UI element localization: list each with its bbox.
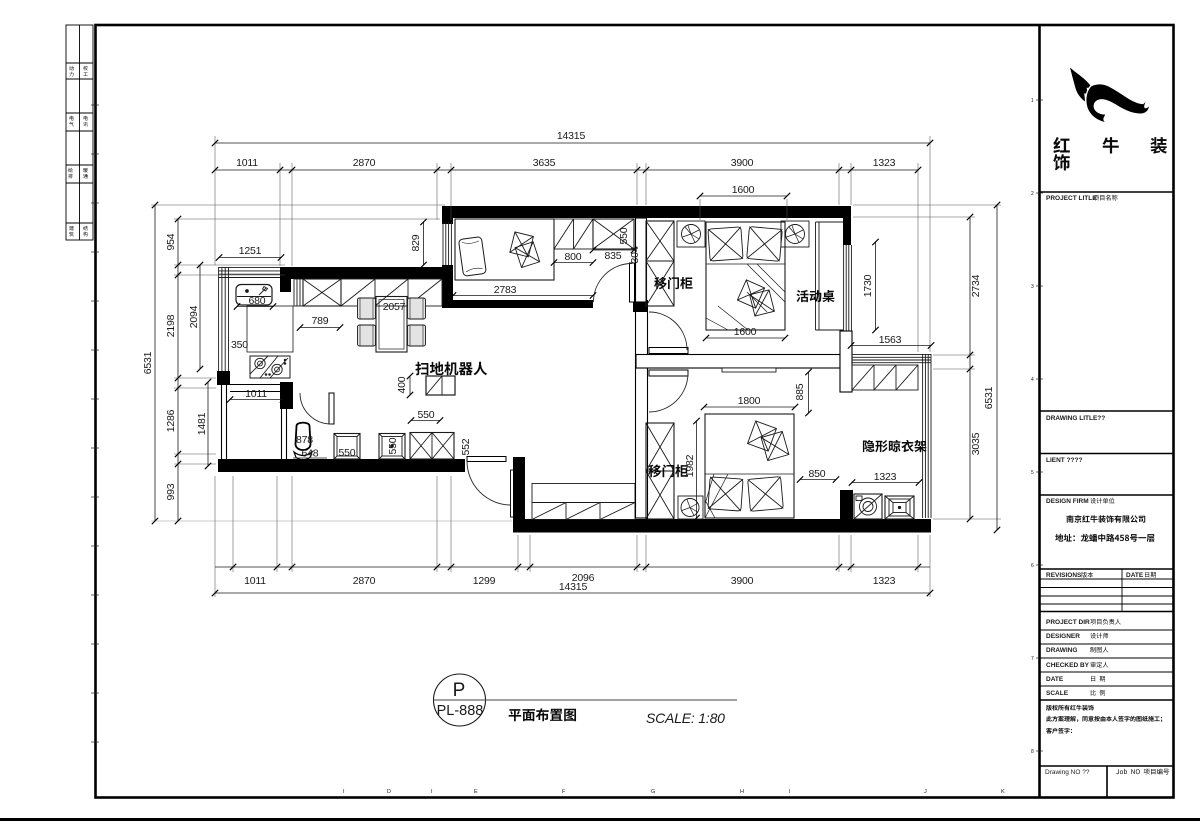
svg-text:1563: 1563 — [879, 334, 902, 346]
svg-text:3900: 3900 — [731, 575, 754, 587]
svg-text:E: E — [474, 789, 478, 795]
svg-text:6531: 6531 — [142, 351, 154, 374]
svg-text:8: 8 — [1031, 749, 1034, 755]
svg-text:835: 835 — [605, 250, 622, 262]
svg-text:1800: 1800 — [738, 395, 761, 407]
svg-text:D: D — [387, 789, 391, 795]
svg-text:14315: 14315 — [557, 130, 586, 142]
svg-text:1730: 1730 — [862, 274, 874, 297]
svg-text:550: 550 — [387, 437, 399, 454]
svg-text:H: H — [740, 789, 744, 795]
svg-text:6: 6 — [1031, 563, 1034, 569]
svg-text:SCALE: SCALE — [1046, 690, 1069, 697]
svg-text:885: 885 — [794, 383, 806, 400]
svg-text:550: 550 — [339, 447, 356, 459]
svg-text:2734: 2734 — [970, 274, 982, 297]
svg-text:PROJECT LITLE: PROJECT LITLE — [1046, 195, 1097, 202]
svg-text:304: 304 — [629, 246, 641, 263]
svg-text:2: 2 — [1031, 191, 1034, 197]
svg-text:PROJECT DIR: PROJECT DIR — [1046, 619, 1090, 626]
svg-text:SCALE: 1:80: SCALE: 1:80 — [646, 710, 725, 726]
svg-text:1: 1 — [1031, 98, 1034, 104]
svg-text:K: K — [1001, 789, 1005, 795]
svg-text:3: 3 — [1031, 284, 1034, 290]
svg-text:1011: 1011 — [236, 157, 258, 169]
svg-text:3900: 3900 — [731, 157, 754, 169]
svg-text:7: 7 — [1031, 656, 1034, 662]
svg-text:680: 680 — [249, 295, 266, 307]
svg-text:2198: 2198 — [165, 314, 177, 337]
svg-text:14315: 14315 — [559, 581, 588, 593]
svg-text:DESIGN FIRM: DESIGN FIRM — [1046, 498, 1089, 505]
svg-text:DRAWING: DRAWING — [1046, 647, 1077, 654]
svg-text:4: 4 — [1031, 377, 1034, 383]
svg-text:DATE: DATE — [1126, 572, 1144, 579]
svg-text:550: 550 — [418, 409, 435, 421]
svg-text:350: 350 — [231, 339, 248, 351]
svg-text:J: J — [924, 789, 927, 795]
svg-text:3035: 3035 — [970, 432, 982, 455]
svg-text:800: 800 — [565, 251, 582, 263]
svg-text:1323: 1323 — [874, 471, 897, 483]
svg-text:789: 789 — [312, 315, 329, 327]
svg-text:2094: 2094 — [188, 305, 200, 328]
svg-text:6531: 6531 — [983, 386, 995, 409]
svg-text:1011: 1011 — [245, 388, 267, 400]
svg-text:954: 954 — [165, 233, 177, 250]
svg-text:P: P — [453, 680, 466, 701]
svg-text:2783: 2783 — [494, 284, 517, 296]
svg-text:993: 993 — [165, 483, 177, 500]
svg-text:5: 5 — [1031, 470, 1034, 476]
svg-text:878: 878 — [296, 434, 313, 446]
svg-text:DATE: DATE — [1046, 676, 1064, 683]
svg-text:1286: 1286 — [165, 409, 177, 432]
svg-text:1600: 1600 — [732, 184, 755, 196]
svg-text:PL-888: PL-888 — [437, 703, 484, 719]
svg-text:Drawing NO ??: Drawing NO ?? — [1045, 769, 1090, 776]
svg-text:2870: 2870 — [353, 575, 376, 587]
svg-text:3635: 3635 — [533, 157, 556, 169]
svg-text:REVISIONS: REVISIONS — [1046, 572, 1082, 579]
svg-text:550: 550 — [618, 227, 630, 244]
svg-text:1299: 1299 — [473, 575, 496, 587]
svg-text:552: 552 — [460, 438, 472, 455]
svg-text:829: 829 — [410, 234, 422, 251]
svg-text:DESIGNER: DESIGNER — [1046, 633, 1080, 640]
svg-text:1323: 1323 — [873, 575, 896, 587]
svg-text:1323: 1323 — [873, 157, 896, 169]
svg-text:G: G — [651, 789, 655, 795]
svg-text:1251: 1251 — [239, 245, 262, 257]
svg-text:2057: 2057 — [383, 301, 406, 313]
svg-text:400: 400 — [396, 376, 408, 393]
svg-text:648: 648 — [302, 448, 319, 460]
svg-text:1600: 1600 — [734, 326, 757, 338]
svg-text:1011: 1011 — [244, 575, 266, 587]
svg-text:1481: 1481 — [196, 412, 208, 435]
svg-text:850: 850 — [809, 468, 826, 480]
svg-text:2870: 2870 — [353, 157, 376, 169]
svg-text:DRAWING LITLE??: DRAWING LITLE?? — [1046, 415, 1105, 422]
svg-text:LIENT ????: LIENT ???? — [1046, 457, 1082, 464]
svg-text:CHECKED BY: CHECKED BY — [1046, 662, 1090, 669]
